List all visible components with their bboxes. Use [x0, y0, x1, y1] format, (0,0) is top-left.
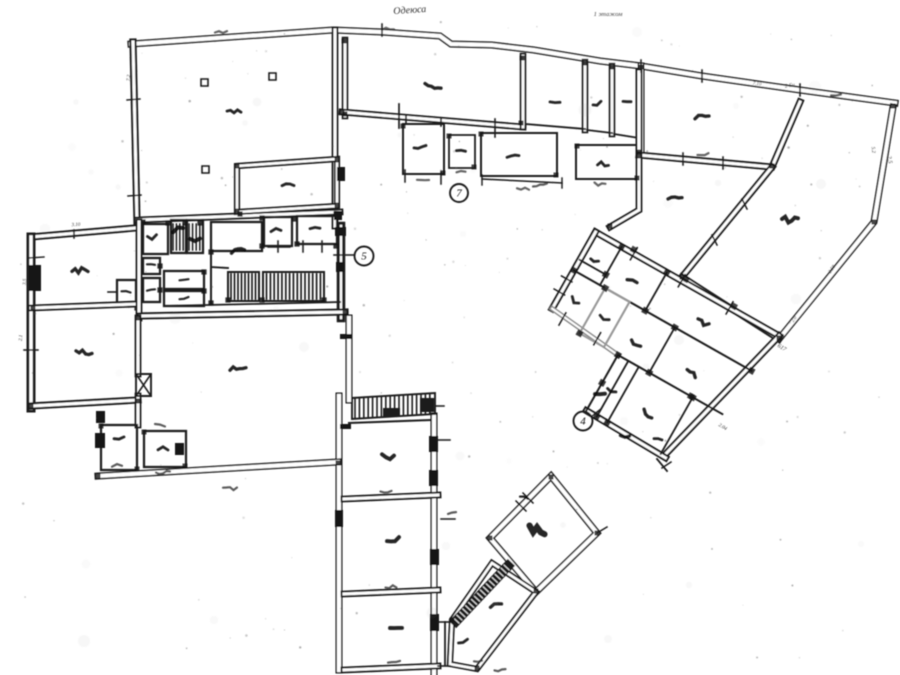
svg-text:5.2: 5.2: [870, 147, 876, 154]
svg-text:2.1: 2.1: [19, 335, 25, 342]
svg-text:Одеюса: Одеюса: [393, 4, 427, 17]
svg-text:7: 7: [456, 188, 462, 200]
svg-text:2.5: 2.5: [885, 156, 892, 164]
svg-text:5: 5: [361, 251, 367, 263]
svg-text:4: 4: [580, 416, 586, 428]
svg-text:7.10: 7.10: [752, 82, 762, 88]
svg-text:1 этажом: 1 этажом: [594, 11, 623, 18]
svg-text:7.2: 7.2: [127, 74, 133, 81]
svg-text:3.10: 3.10: [71, 223, 80, 228]
svg-text:3.5: 3.5: [23, 278, 29, 285]
